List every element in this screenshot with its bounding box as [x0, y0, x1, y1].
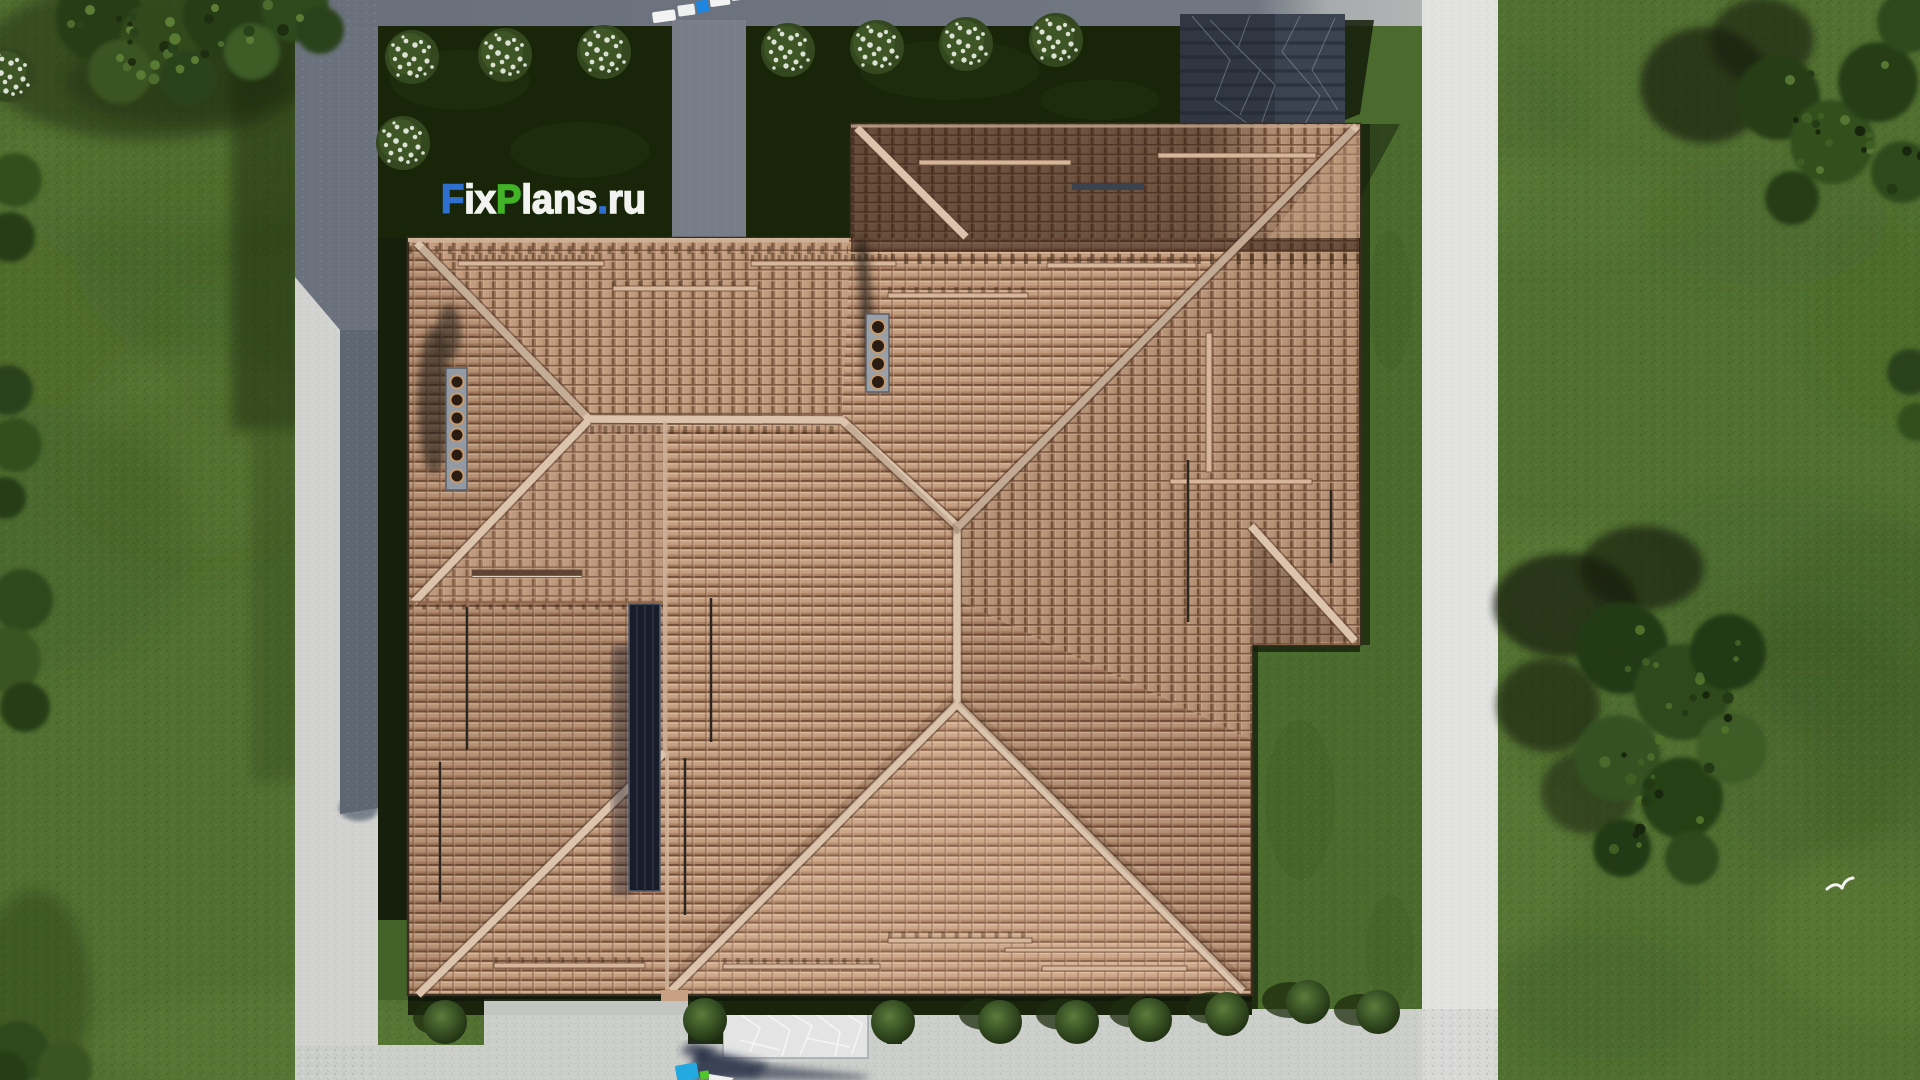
svg-text:FixPlans.ru: FixPlans.ru	[441, 176, 646, 222]
